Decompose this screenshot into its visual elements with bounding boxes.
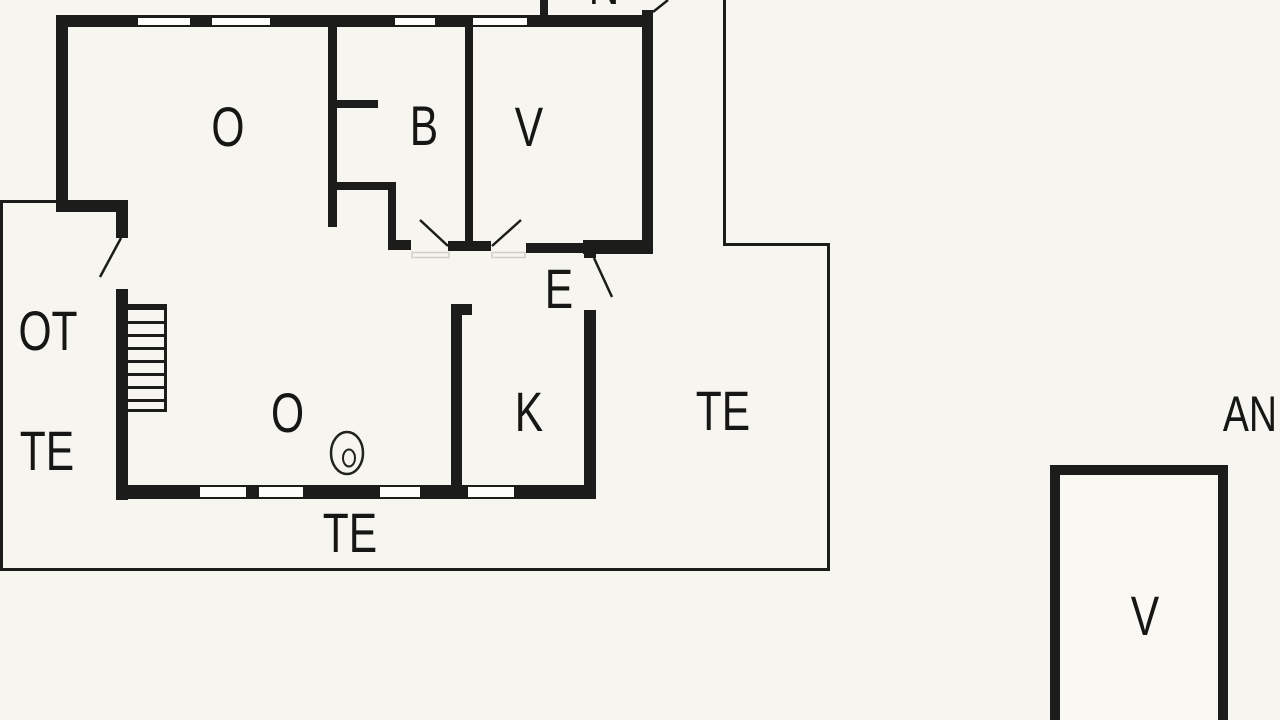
svg-text:V: V [515, 95, 543, 158]
svg-text:O: O [211, 95, 244, 158]
svg-text:TE: TE [696, 379, 750, 442]
svg-text:N: N [589, 0, 620, 16]
svg-text:K: K [515, 380, 543, 443]
svg-text:V: V [1131, 584, 1159, 647]
svg-text:O: O [271, 381, 304, 444]
svg-text:E: E [545, 257, 573, 320]
svg-text:B: B [410, 94, 438, 157]
svg-text:AN: AN [1223, 385, 1277, 442]
svg-text:TE: TE [323, 501, 377, 564]
svg-text:TE: TE [20, 419, 74, 482]
svg-text:OT: OT [18, 299, 77, 362]
